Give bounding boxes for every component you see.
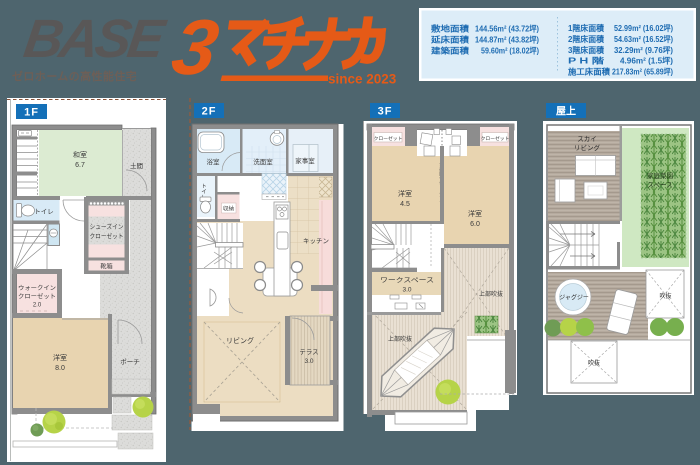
svg-text:収納: 収納 <box>223 205 235 213</box>
svg-text:洋室: 洋室 <box>398 189 412 198</box>
svg-text:52.99m² (16.02坪): 52.99m² (16.02坪) <box>614 23 673 33</box>
svg-text:吹抜: 吹抜 <box>659 292 671 300</box>
svg-text:2F: 2F <box>202 106 217 118</box>
svg-text:1F: 1F <box>24 107 39 119</box>
svg-text:土間: 土間 <box>130 161 143 170</box>
svg-text:1階床面積: 1階床面積 <box>568 23 605 33</box>
svg-text:シューズイン: シューズイン <box>90 223 124 231</box>
svg-text:ポーチ: ポーチ <box>120 358 140 366</box>
svg-text:59.60m² (18.02坪): 59.60m² (18.02坪) <box>481 45 539 55</box>
svg-text:ジャグジー: ジャグジー <box>559 294 589 302</box>
svg-text:リビング: リビング <box>226 336 254 345</box>
svg-text:3F: 3F <box>378 106 393 118</box>
svg-text:3.0: 3.0 <box>402 287 411 294</box>
svg-text:リビング: リビング <box>574 143 601 152</box>
svg-text:上部吹抜: 上部吹抜 <box>388 335 412 343</box>
svg-text:54.63m² (16.52坪): 54.63m² (16.52坪) <box>614 34 673 44</box>
svg-text:敷地面積: 敷地面積 <box>431 24 470 34</box>
svg-text:クローゼット: クローゼット <box>18 293 56 301</box>
svg-text:6.0: 6.0 <box>470 221 480 228</box>
svg-text:上部吹抜: 上部吹抜 <box>479 290 503 298</box>
svg-text:ゼロホームの高性能住宅: ゼロホームの高性能住宅 <box>12 69 137 83</box>
svg-text:P H 階: P H 階 <box>568 56 605 66</box>
svg-text:浴室: 浴室 <box>207 157 221 166</box>
svg-text:BASE: BASE <box>20 9 170 69</box>
svg-text:2階床面積: 2階床面積 <box>568 34 605 44</box>
svg-text:家庭菜園: 家庭菜園 <box>647 171 673 180</box>
svg-text:8.0: 8.0 <box>55 365 65 372</box>
svg-text:クローゼット: クローゼット <box>481 135 510 142</box>
svg-text:吹抜: 吹抜 <box>588 359 600 367</box>
svg-text:144.87m² (43.82坪): 144.87m² (43.82坪) <box>475 34 539 44</box>
svg-text:4.96m² (1.5坪): 4.96m² (1.5坪) <box>620 56 673 66</box>
svg-text:6.7: 6.7 <box>75 162 85 169</box>
svg-text:洋室: 洋室 <box>53 353 67 362</box>
svg-text:洗面室: 洗面室 <box>253 157 273 166</box>
svg-text:3.0: 3.0 <box>304 358 313 365</box>
svg-text:テラス: テラス <box>299 348 318 356</box>
svg-text:2.0: 2.0 <box>33 303 42 309</box>
svg-text:靴箱: 靴箱 <box>100 263 112 271</box>
svg-text:since 2023: since 2023 <box>328 72 397 87</box>
svg-text:スカイ: スカイ <box>577 135 597 143</box>
svg-text:屋上: 屋上 <box>556 105 576 118</box>
svg-text:4.5: 4.5 <box>400 201 410 208</box>
svg-text:ウォークイン: ウォークイン <box>18 284 56 292</box>
svg-text:和室: 和室 <box>73 150 87 159</box>
svg-text:トイレ: トイレ <box>34 209 54 216</box>
svg-text:延床面積: 延床面積 <box>430 34 470 44</box>
svg-text:32.29m² (9.76坪): 32.29m² (9.76坪) <box>614 45 673 55</box>
svg-text:スペース: スペース <box>647 181 672 189</box>
svg-text:144.56m² (43.72坪): 144.56m² (43.72坪) <box>475 24 539 34</box>
svg-text:洋室: 洋室 <box>468 209 482 218</box>
svg-text:クローゼット: クローゼット <box>90 233 124 241</box>
svg-text:3階床面積: 3階床面積 <box>568 45 605 55</box>
svg-text:クローゼット: クローゼット <box>374 135 403 142</box>
svg-text:キッチン: キッチン <box>303 237 329 245</box>
svg-text:施工床面積: 施工床面積 <box>568 67 611 77</box>
svg-text:217.83m² (65.89坪): 217.83m² (65.89坪) <box>612 67 673 77</box>
svg-text:家事室: 家事室 <box>295 156 315 165</box>
svg-text:ワークスペース: ワークスペース <box>380 276 434 284</box>
svg-text:建築面積: 建築面積 <box>431 45 470 55</box>
